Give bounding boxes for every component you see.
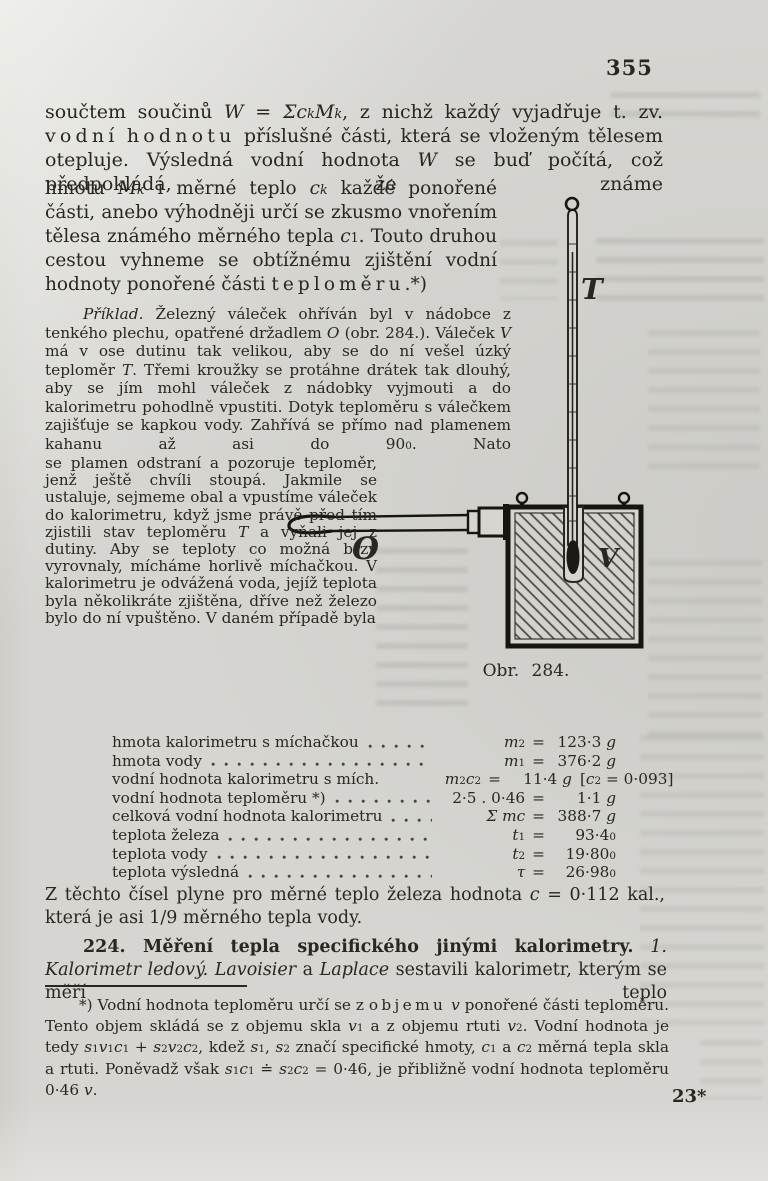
row-label: vodní hodnota kalorimetru s mích. (112, 770, 379, 788)
table-row: vodní hodnota kalorimetru s mích.m2c2=11… (112, 770, 624, 789)
row-label: vodní hodnota teploměru *) (112, 789, 326, 807)
row-symbol: m1 (439, 752, 525, 770)
row-label: teplota výsledná (112, 863, 239, 881)
paragraph-water-value-narrow: hmotu Mk i měrné teplo ck každé ponořené… (45, 177, 497, 297)
row-label: teplota vody (112, 845, 208, 863)
row-value: 19·800 (550, 845, 616, 863)
row-label: hmota vody (112, 752, 202, 770)
row-value: 11·4 g (506, 770, 572, 788)
equals-sign: = (525, 845, 550, 863)
row-label: teplota železa (112, 826, 219, 844)
label-thermometer: T (581, 272, 603, 306)
equals-sign: = (525, 752, 550, 770)
row-value: 26·980 (550, 863, 616, 881)
book-page: 355 součtem součinů W = ΣckMk, z nichž k… (0, 0, 768, 1181)
bleed-through-text (700, 1040, 762, 1100)
row-symbol: m2 (439, 733, 525, 751)
row-symbol: τ (439, 863, 525, 881)
figure-caption: Obr. 284. (446, 661, 606, 681)
table-row: hmota kalorimetru s míchačkoum2=123·3 g (112, 733, 624, 752)
row-symbol: t2 (439, 845, 525, 863)
row-symbol: m2c2 (395, 770, 481, 788)
row-value: 93·40 (550, 826, 616, 844)
table-row: hmota vodym1=376·2 g (112, 752, 624, 771)
footnote-rule (45, 985, 247, 987)
table-row: vodní hodnota teploměru *)2·5 . 0·46=1·1… (112, 789, 624, 808)
dot-leader (248, 874, 432, 879)
table-row: teplota železat1=93·40 (112, 826, 624, 845)
row-symbol: Σ mc (439, 807, 525, 825)
dot-leader (228, 837, 432, 842)
row-value: 1·1 g (550, 789, 616, 807)
row-value: 376·2 g (550, 752, 616, 770)
equals-sign: = (525, 826, 550, 844)
dot-leader (391, 818, 432, 823)
table-row: teplota výslednáτ=26·980 (112, 863, 624, 882)
table-row: celková vodní hodnota kalorimetruΣ mc=38… (112, 807, 624, 826)
dot-leader (368, 744, 433, 749)
paragraph-priklad-wide: Příklad. Železný váleček ohříván byl v n… (45, 305, 511, 453)
row-label: celková vodní hodnota kalorimetru (112, 807, 382, 825)
thermometer-bulb (567, 540, 580, 574)
dot-leader (217, 855, 433, 860)
row-label: hmota kalorimetru s míchačkou (112, 733, 359, 751)
page-number: 355 (606, 55, 653, 80)
row-symbol: t1 (439, 826, 525, 844)
equals-sign: = (481, 770, 506, 788)
thermometer (566, 198, 580, 574)
table-row: teplota vodyt2=19·800 (112, 845, 624, 864)
paragraph-priklad-narrow: se plamen odstraní a pozoruje teploměr, … (45, 455, 377, 627)
equals-sign: = (525, 789, 550, 807)
row-value: 388·7 g (550, 807, 616, 825)
row-note: [c2 = 0·093] (580, 770, 673, 788)
paragraph-result: Z těchto čísel plyne pro měrné teplo žel… (45, 884, 665, 929)
equals-sign: = (525, 863, 550, 881)
signature-mark: 23* (672, 1086, 706, 1107)
measurement-table: hmota kalorimetru s míchačkoum2=123·3 g … (112, 733, 624, 882)
row-value: 123·3 g (550, 733, 616, 751)
equals-sign: = (525, 807, 550, 825)
dot-leader (335, 799, 433, 804)
row-symbol: 2·5 . 0·46 (439, 789, 525, 807)
equals-sign: = (525, 733, 550, 751)
footnote-text: *) Vodní hodnota teploměru určí se z obj… (45, 995, 669, 1101)
label-handle: O (352, 531, 379, 567)
label-cylinder: V (598, 544, 618, 574)
dot-leader (211, 762, 432, 767)
